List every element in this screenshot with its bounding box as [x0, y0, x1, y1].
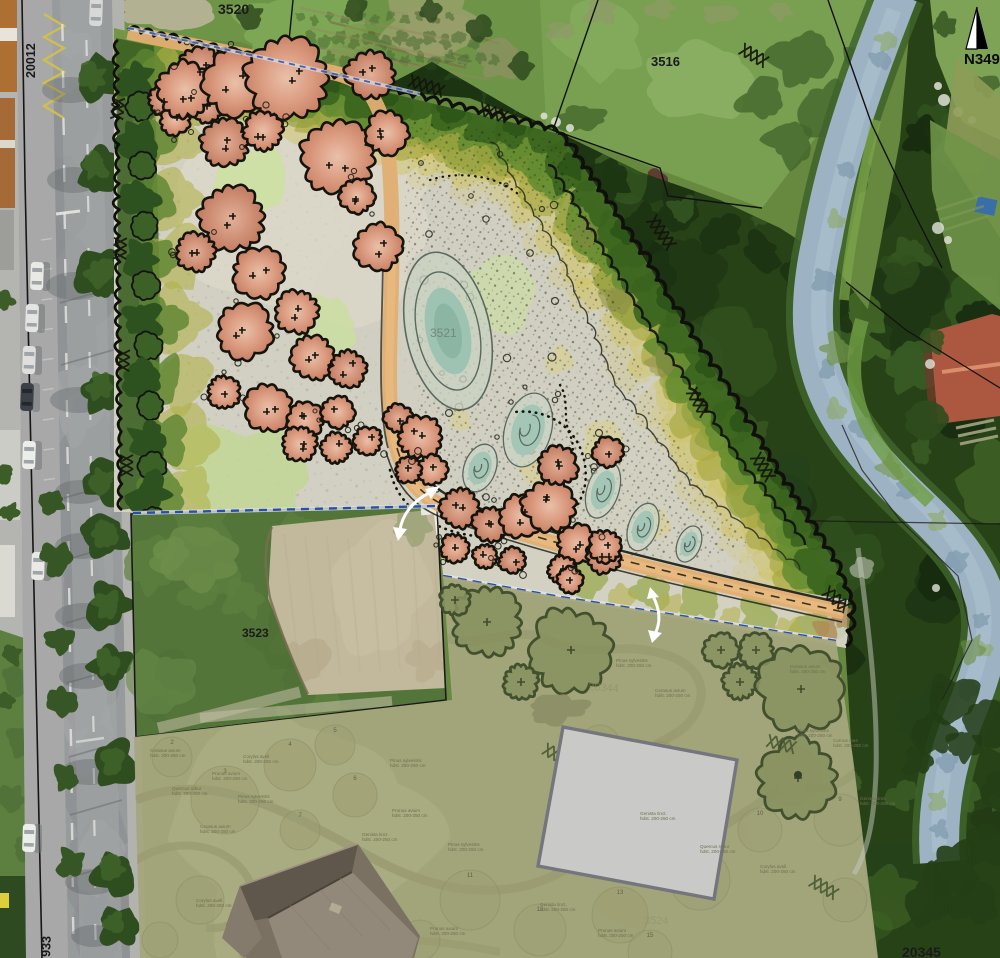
svg-text:hdst. 200-250 cm: hdst. 200-250 cm — [200, 829, 236, 834]
svg-text:hdst. 200-250 cm: hdst. 200-250 cm — [150, 753, 186, 758]
svg-text:hdst. 200-250 cm: hdst. 200-250 cm — [540, 907, 576, 912]
svg-text:hdst. 200-250 cm: hdst. 200-250 cm — [655, 693, 691, 698]
svg-text:hdst. 200-250 cm: hdst. 200-250 cm — [833, 743, 869, 748]
svg-text:hdst. 200-250 cm: hdst. 200-250 cm — [598, 933, 634, 938]
svg-text:3523: 3523 — [242, 626, 269, 640]
svg-text:11: 11 — [467, 873, 474, 879]
svg-text:hdst. 200-250 cm: hdst. 200-250 cm — [448, 847, 484, 852]
svg-text:hdst. 200-250 cm: hdst. 200-250 cm — [760, 869, 796, 874]
svg-text:hdst. 200-250 cm: hdst. 200-250 cm — [362, 837, 398, 842]
svg-text:3520: 3520 — [218, 1, 249, 17]
svg-text:hdst. 200-250 cm: hdst. 200-250 cm — [196, 903, 232, 908]
svg-text:hdst. 200-250 cm: hdst. 200-250 cm — [430, 931, 466, 936]
svg-text:hdst. 200-250 cm: hdst. 200-250 cm — [392, 813, 428, 818]
svg-text:13: 13 — [617, 890, 624, 896]
svg-text:20344: 20344 — [588, 681, 619, 695]
svg-text:15: 15 — [647, 933, 654, 939]
svg-text:3524: 3524 — [644, 915, 668, 927]
svg-text:hdst. 200-250 cm: hdst. 200-250 cm — [172, 791, 208, 796]
svg-text:hdst. 200-250 cm: hdst. 200-250 cm — [640, 816, 676, 821]
svg-text:hdst. 200-250 cm: hdst. 200-250 cm — [243, 759, 279, 764]
svg-text:hdst. 200-250 cm: hdst. 200-250 cm — [700, 849, 736, 854]
svg-text:3521: 3521 — [430, 326, 457, 340]
svg-text:hdst. 200-250 cm: hdst. 200-250 cm — [797, 733, 833, 738]
svg-text:hdst. 200-250 cm: hdst. 200-250 cm — [212, 776, 248, 781]
svg-text:N349: N349 — [964, 51, 1000, 68]
svg-text:hdst. 200-250 cm: hdst. 200-250 cm — [860, 801, 896, 806]
svg-text:hdst. 200-250 cm: hdst. 200-250 cm — [390, 763, 426, 768]
svg-text:933: 933 — [39, 936, 54, 957]
svg-text:20012: 20012 — [24, 43, 38, 78]
svg-text:hdst. 200-250 cm: hdst. 200-250 cm — [238, 799, 274, 804]
svg-text:hdst. 200-250 cm: hdst. 200-250 cm — [616, 663, 652, 668]
svg-text:10: 10 — [757, 811, 764, 817]
svg-text:hdst. 200-250 cm: hdst. 200-250 cm — [790, 669, 826, 674]
svg-text:3516: 3516 — [651, 54, 680, 69]
svg-text:20345: 20345 — [902, 944, 941, 958]
